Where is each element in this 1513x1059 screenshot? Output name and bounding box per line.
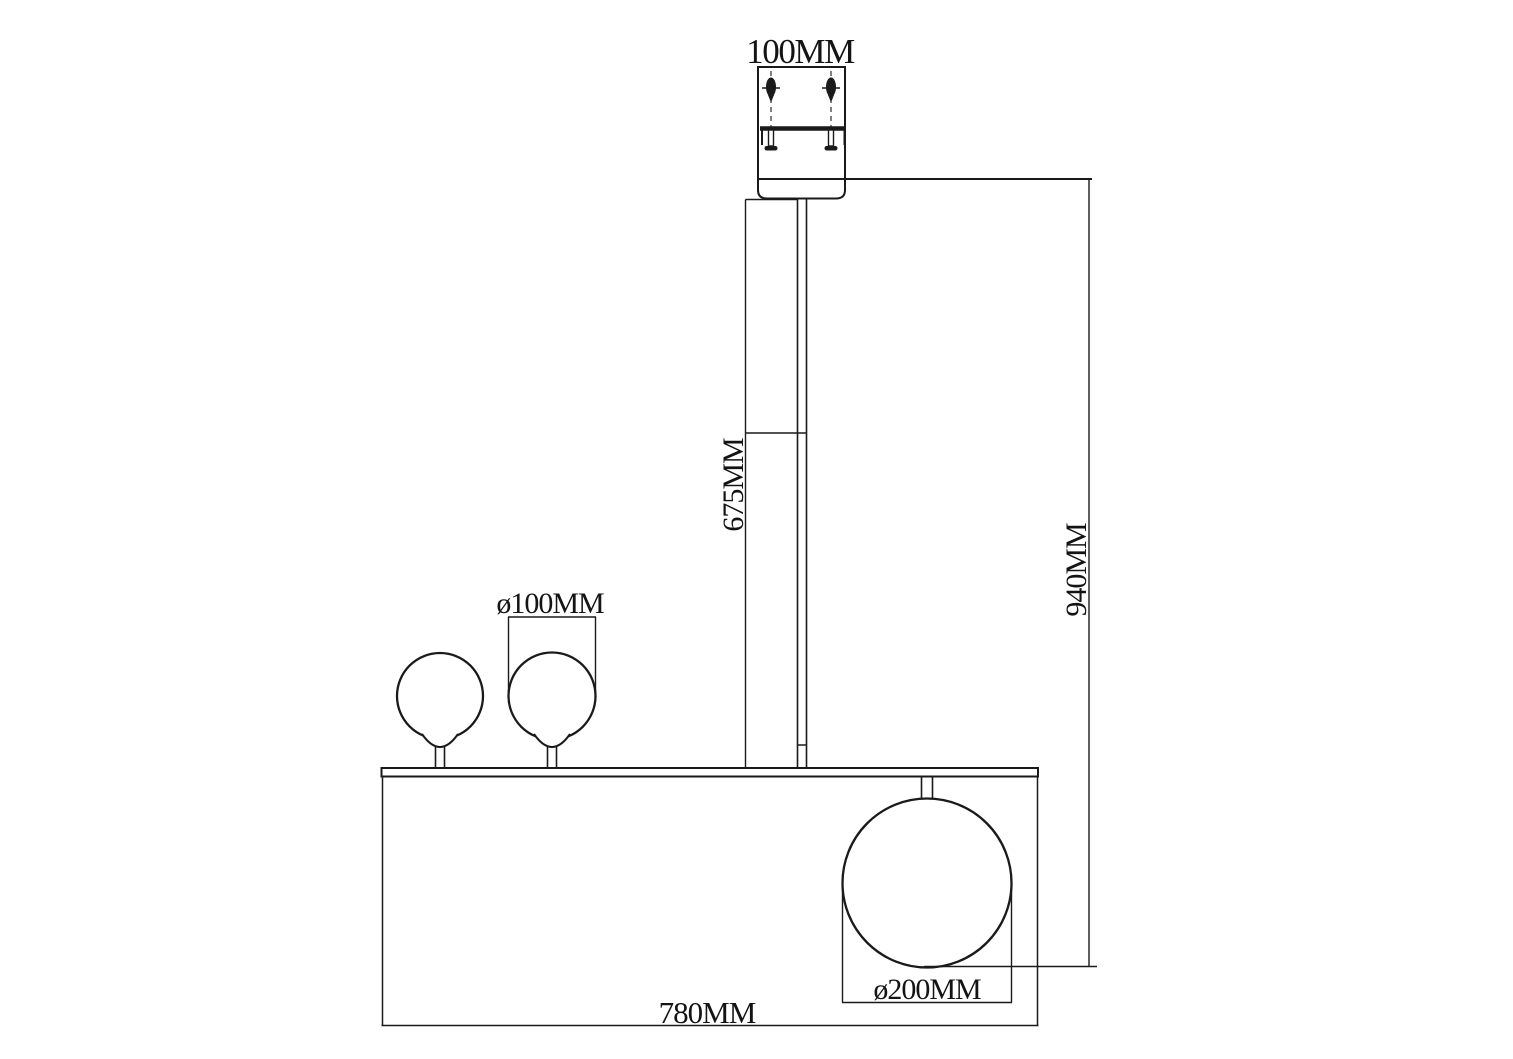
dim-label-large-globe: ø200MM: [873, 973, 981, 1006]
globe-stem-left: [436, 746, 445, 768]
dim-label-overall-drop: 940MM: [1060, 523, 1093, 617]
globe-stem-large: [922, 777, 933, 802]
lamp-bar: [382, 768, 1039, 777]
suspension-rod: [798, 199, 807, 769]
dim-rod-length: [746, 200, 798, 768]
dim-label-canopy-width: 100MM: [746, 32, 855, 71]
pendant-lamp-dimension-drawing: 100MM 675MM 940MM ø100MM ø200MM 780MM: [0, 0, 1513, 1059]
globe-large: [843, 799, 1012, 968]
dim-label-bar-length: 780MM: [659, 995, 756, 1030]
dim-label-small-globe: ø100MM: [496, 587, 604, 620]
globe-small-right: [509, 653, 596, 740]
dimension-drawing-page: 100MM 675MM 940MM ø100MM ø200MM 780MM: [0, 0, 1513, 1059]
globe-small-left: [397, 653, 483, 739]
globe-stem-right: [548, 746, 557, 768]
dim-label-rod-length: 675MM: [717, 438, 750, 532]
